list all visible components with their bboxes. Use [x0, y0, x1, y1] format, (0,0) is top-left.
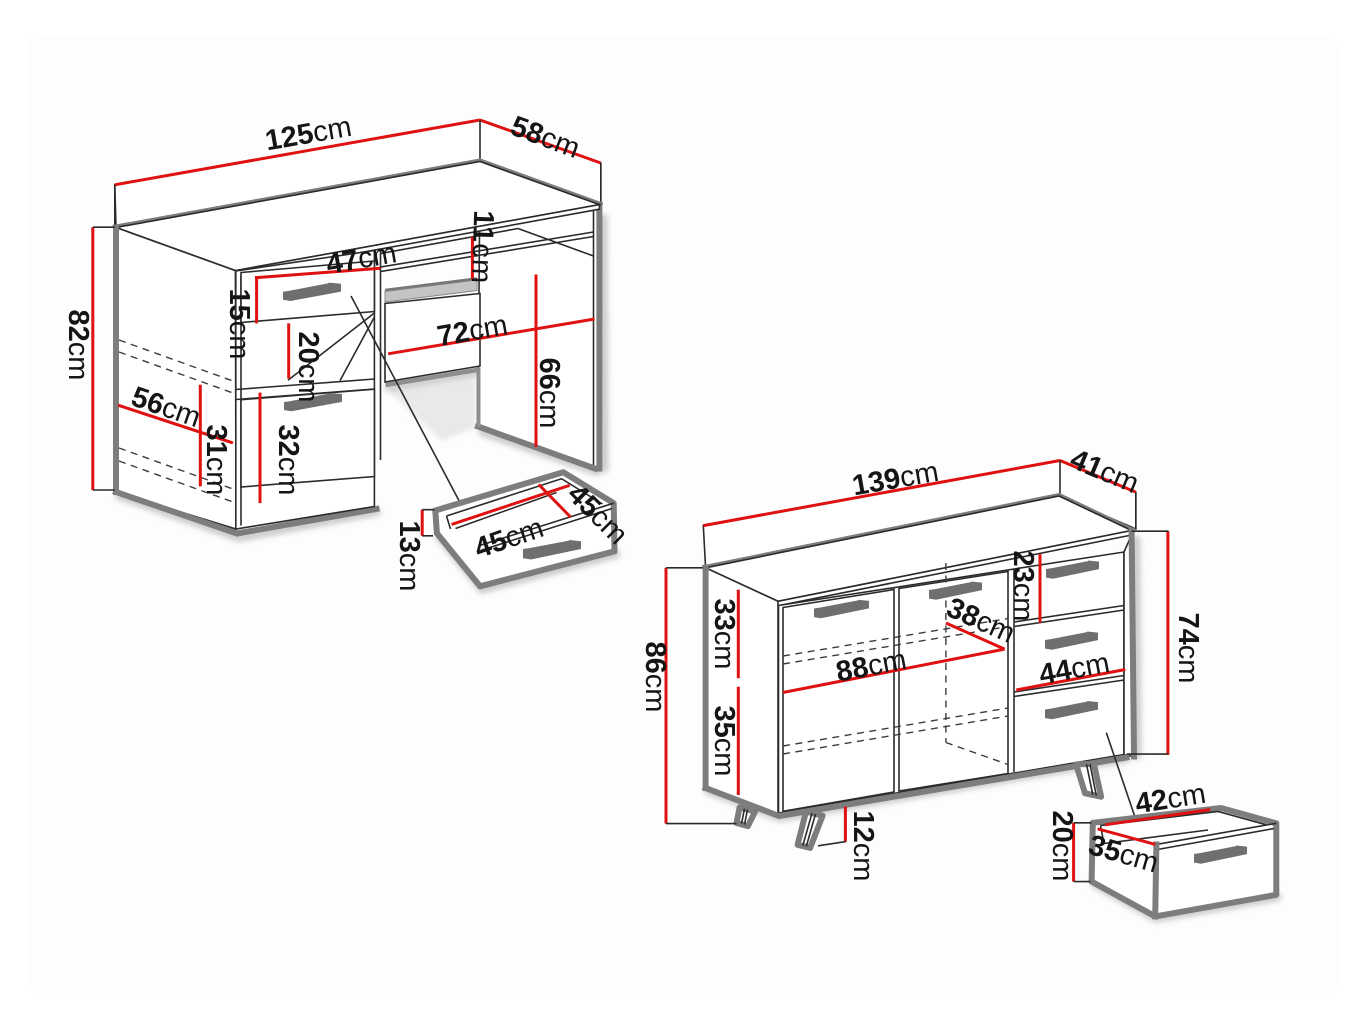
svg-text:82cm: 82cm [62, 310, 94, 381]
svg-text:15cm: 15cm [223, 289, 255, 360]
svg-text:11cm: 11cm [465, 210, 500, 285]
svg-text:86cm: 86cm [639, 642, 671, 713]
svg-text:31cm: 31cm [200, 425, 232, 496]
svg-text:74cm: 74cm [1172, 613, 1204, 684]
svg-text:66cm: 66cm [533, 358, 565, 429]
svg-text:20cm: 20cm [1046, 811, 1078, 882]
svg-text:33cm: 33cm [708, 599, 740, 670]
svg-text:32cm: 32cm [272, 425, 304, 496]
svg-text:20cm: 20cm [292, 332, 324, 403]
svg-text:35cm: 35cm [708, 706, 740, 777]
svg-text:12cm: 12cm [847, 811, 879, 882]
svg-text:13cm: 13cm [393, 521, 425, 592]
svg-text:23cm: 23cm [1007, 551, 1039, 622]
